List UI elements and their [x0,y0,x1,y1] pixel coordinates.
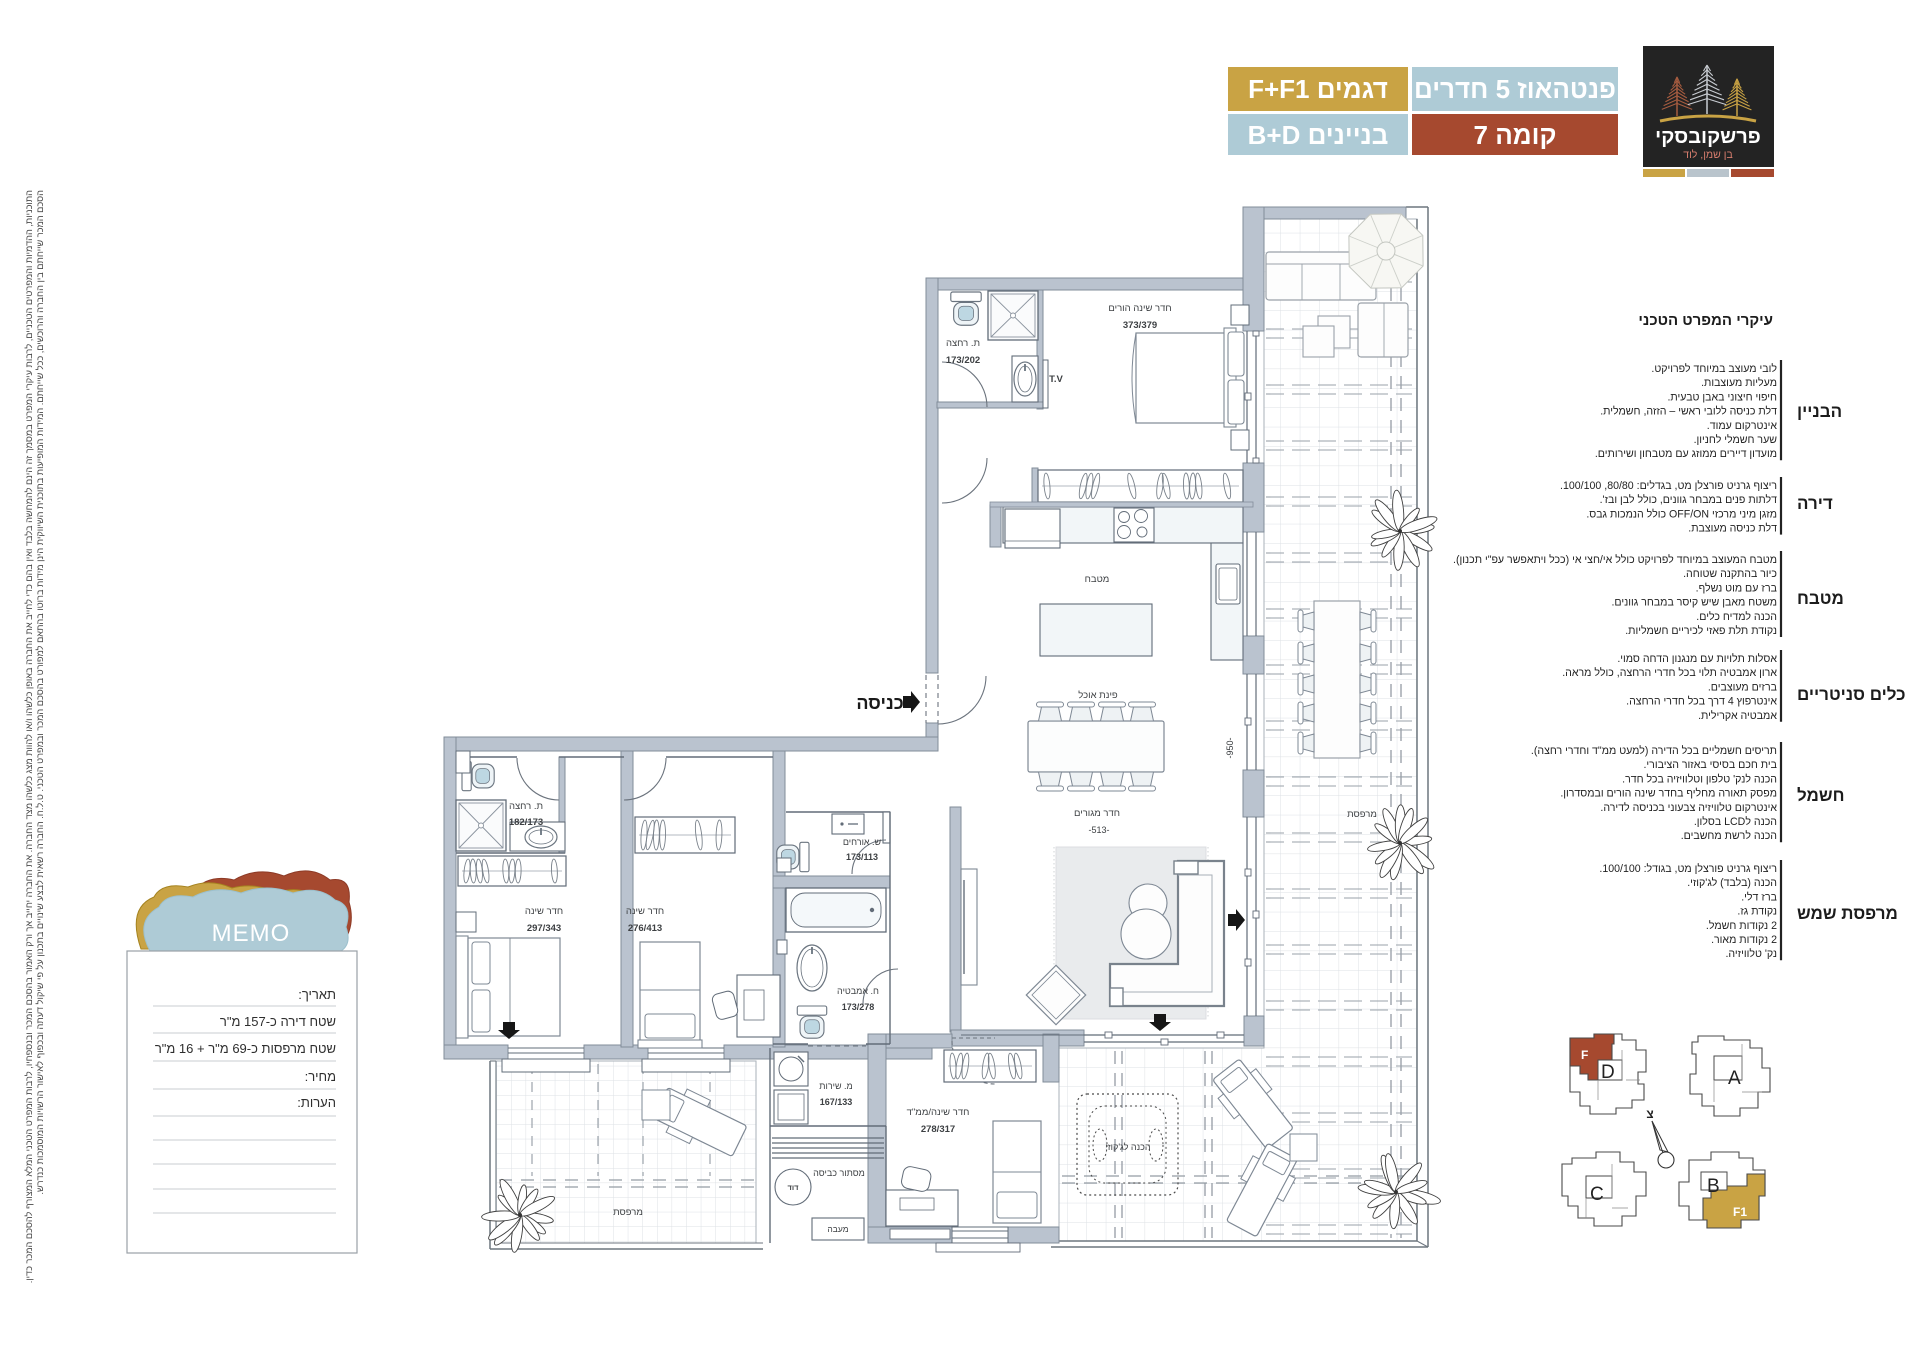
svg-text:מטבח: מטבח [1797,589,1844,608]
svg-text:אינטרפוץ 4 דרך בכל חדרי הרחצה.: אינטרפוץ 4 דרך בכל חדרי הרחצה. [1626,696,1777,708]
svg-text:פנטהאוז 5 חדרים: פנטהאוז 5 חדרים [1414,74,1616,104]
svg-text:-513-: -513- [1088,825,1109,835]
svg-text:מ. שירות: מ. שירות [819,1081,852,1091]
svg-text:עיקרי המפרט הטכני: עיקרי המפרט הטכני [1638,312,1773,329]
svg-text:הסכם המכר שייחתם בין החברה והר: הסכם המכר שייחתם בין החברה והרוכשים, ככל… [35,190,45,1195]
svg-text:ברז עם מוט נשלף.: ברז עם מוט נשלף. [1696,582,1777,594]
svg-text:מעבה: מעבה [827,1224,848,1234]
svg-text:מרפסת שמש: מרפסת שמש [1797,904,1898,923]
svg-text:מרפסת: מרפסת [1347,809,1377,820]
svg-text:276/413: 276/413 [628,923,662,934]
svg-text:אסלות תלויות עם מנגנון הדחה סמ: אסלות תלויות עם מנגנון הדחה סמוי. [1617,653,1777,665]
svg-text:C: C [1590,1184,1604,1205]
svg-text:ברזים מעוצבים.: ברזים מעוצבים. [1708,681,1777,693]
svg-text:מטבח: מטבח [1085,574,1110,585]
svg-text:182/173: 182/173 [509,817,543,828]
svg-text:תריסים חשמליים בכל הדירה (למעט: תריסים חשמליים בכל הדירה (למעט ממ"ד וחדר… [1531,745,1777,757]
svg-text:ש. אורחים: ש. אורחים [843,837,882,847]
svg-text:ח. אמבטיה: ח. אמבטיה [837,986,879,996]
svg-text:MEMO: MEMO [212,920,291,947]
svg-text:נק' טלוויזיה.: נק' טלוויזיה. [1725,948,1777,960]
svg-text:אינטרקום עמוד.: אינטרקום עמוד. [1707,420,1778,432]
svg-text:373/379: 373/379 [1123,320,1157,331]
svg-text:הבניין: הבניין [1797,402,1842,421]
svg-text:לובי מעוצב במיוחד לפרויקט.: לובי מעוצב במיוחד לפרויקט. [1651,363,1777,375]
svg-text:כלים סניטריים: כלים סניטריים [1797,685,1906,704]
svg-text:ריצוף גרניט פורצלן מט, בגדלים:: ריצוף גרניט פורצלן מט, בגדלים: 80/80, 10… [1560,480,1777,492]
svg-text:הערות:: הערות: [297,1095,336,1110]
svg-text:אמבטיה אקרילית.: אמבטיה אקרילית. [1698,710,1777,722]
svg-text:F: F [1581,1048,1588,1062]
svg-text:כיור בהתקנה שטוחה.: כיור בהתקנה שטוחה. [1683,568,1777,580]
svg-text:הכנה לג'קוזי: הכנה לג'קוזי [1105,1142,1150,1152]
svg-text:D: D [1601,1062,1615,1083]
svg-text:כניסה: כניסה [856,693,903,713]
svg-text:חדר שינה/ממ"ד: חדר שינה/ממ"ד [907,1107,970,1118]
svg-text:חשמל: חשמל [1797,786,1845,805]
svg-text:שטח מרפסות כ-69 מ"ר + 16 מ"ר: שטח מרפסות כ-69 מ"ר + 16 מ"ר [155,1041,336,1056]
svg-text:מזגן מיני מרכזי OFF/ON כולל ה: מזגן מיני מרכזי OFF/ON כולל הנמכות גבס. [1586,508,1777,520]
svg-text:278/317: 278/317 [921,1124,955,1135]
svg-text:ברז דלי.: ברז דלי. [1741,891,1777,903]
svg-text:B: B [1707,1176,1720,1197]
svg-text:חדר מגורים: חדר מגורים [1074,808,1120,819]
svg-text:173/278: 173/278 [842,1002,875,1012]
svg-text:דוד: דוד [788,1183,800,1192]
svg-text:תאריך:: תאריך: [298,987,336,1002]
svg-text:חדר שינה: חדר שינה [626,906,664,917]
svg-text:חדר שינה הורים: חדר שינה הורים [1108,303,1171,314]
svg-text:צ: צ [1646,1107,1653,1121]
svg-text:הכנה לרשת מחשבים.: הכנה לרשת מחשבים. [1681,830,1777,842]
svg-text:פרשקובסקי: פרשקובסקי [1655,126,1761,148]
svg-text:מרפסת: מרפסת [613,1207,643,1218]
svg-text:שטח דירה כ-157 מ"ר: שטח דירה כ-157 מ"ר [220,1014,336,1029]
svg-text:הכנה (בלבד) לג'קוזי.: הכנה (בלבד) לג'קוזי. [1687,877,1777,889]
svg-text:167/133: 167/133 [820,1097,853,1107]
svg-text:התוכניות, ההדמיות והמפרטים הטכ: התוכניות, ההדמיות והמפרטים הטכניים, לרבו… [24,190,34,1283]
svg-text:ריצוף גרניט פורצלן מט, בגודל:: ריצוף גרניט פורצלן מט, בגודל: 100/100. [1599,863,1777,875]
svg-text:T.V: T.V [1049,374,1063,385]
svg-text:הכנה לנק' טלפון וטלוויזיה בכל: הכנה לנק' טלפון וטלוויזיה בכל חדר. [1622,773,1777,785]
svg-text:שער חשמלי לחניון.: שער חשמלי לחניון. [1694,434,1778,446]
svg-text:נקודת תלת פאזי לכיריים חשמליות: נקודת תלת פאזי לכיריים חשמליות. [1625,625,1777,637]
svg-text:מחיר:: מחיר: [305,1069,336,1084]
svg-text:2 נקודות מאור.: 2 נקודות מאור. [1711,934,1777,946]
svg-text:הכנה למדיח כלים.: הכנה למדיח כלים. [1696,611,1777,623]
svg-text:בן שמן, לוד: בן שמן, לוד [1683,149,1732,161]
svg-text:דלת כניסה ללובי ראשי – הזזה, ח: דלת כניסה ללובי ראשי – הזזה, חשמלית. [1600,406,1777,418]
svg-text:173/202: 173/202 [946,355,980,366]
svg-text:משטח מאבן שיש קיסר במבחר גווני: משטח מאבן שיש קיסר במבחר גוונים. [1611,597,1777,609]
svg-text:דגמים F+F1: דגמים F+F1 [1248,74,1388,104]
svg-text:מפסק תאורה מחליף בחדר שינה הור: מפסק תאורה מחליף בחדר שינה הורים ובמסדרו… [1560,788,1777,800]
svg-text:נקודת גז.: נקודת גז. [1737,906,1777,918]
svg-text:הכנה לLCD בסלון.: הכנה לLCD בסלון. [1694,816,1777,828]
svg-text:דלת כניסה מעוצבת.: דלת כניסה מעוצבת. [1688,523,1777,535]
svg-text:בניינים B+D: בניינים B+D [1248,120,1389,150]
svg-text:פינת אוכל: פינת אוכל [1078,689,1118,701]
svg-text:2 נקודות חשמל.: 2 נקודות חשמל. [1706,920,1777,932]
svg-text:ת. רחצה: ת. רחצה [946,338,980,349]
svg-text:F1: F1 [1733,1205,1747,1219]
svg-text:מעליות מעוצבות.: מעליות מעוצבות. [1701,377,1777,389]
svg-text:173/113: 173/113 [846,852,878,862]
svg-text:ארון אמבטיה תלוי בכל חדרי הרחצ: ארון אמבטיה תלוי בכל חדרי הרחצה, כולל מר… [1562,667,1777,679]
svg-text:אינטרקום טלוויזיה צבעוני בכניס: אינטרקום טלוויזיה צבעוני בכניסה לדירה. [1600,802,1777,814]
svg-text:קומה 7: קומה 7 [1474,120,1557,150]
svg-text:מועדון דיירים ממוזג עם מטבחון: מועדון דיירים ממוזג עם מטבחון ושירותים. [1595,448,1777,460]
svg-text:מטבח המעוצב במיוחד לפרויקט כול: מטבח המעוצב במיוחד לפרויקט כולל אי/חצי א… [1453,554,1777,566]
svg-text:בית חכם בסיסי באזור הציבורי.: בית חכם בסיסי באזור הציבורי. [1643,759,1777,771]
svg-text:ת. רחצה: ת. רחצה [509,801,543,812]
svg-text:דירה: דירה [1797,494,1833,513]
svg-text:A: A [1728,1068,1741,1089]
svg-text:297/343: 297/343 [527,923,561,934]
svg-text:דלתות פנים במבחר גוונים, כולל: דלתות פנים במבחר גוונים, כולל לבן ובז'. [1600,494,1778,506]
svg-text:-950-: -950- [1225,737,1235,758]
svg-text:חיפוי חיצוני באבן טבעית.: חיפוי חיצוני באבן טבעית. [1667,391,1777,403]
svg-text:חדר שינה: חדר שינה [525,906,563,917]
svg-text:מסתור כביסה: מסתור כביסה [813,1168,865,1178]
